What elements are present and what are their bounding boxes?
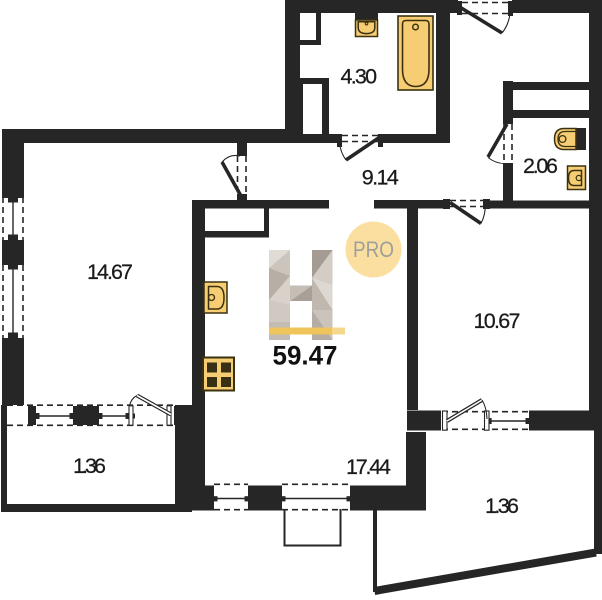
svg-text:1.36: 1.36: [73, 454, 106, 478]
svg-text:17.44: 17.44: [346, 455, 391, 479]
svg-text:14.67: 14.67: [87, 260, 133, 284]
svg-text:59.47: 59.47: [273, 341, 338, 371]
svg-text:2.06: 2.06: [523, 154, 558, 178]
svg-text:PRO: PRO: [353, 237, 394, 262]
svg-text:10.67: 10.67: [474, 309, 521, 333]
svg-text:4.30: 4.30: [341, 65, 378, 89]
svg-text:9.14: 9.14: [362, 165, 399, 189]
svg-text:1.36: 1.36: [485, 494, 519, 518]
